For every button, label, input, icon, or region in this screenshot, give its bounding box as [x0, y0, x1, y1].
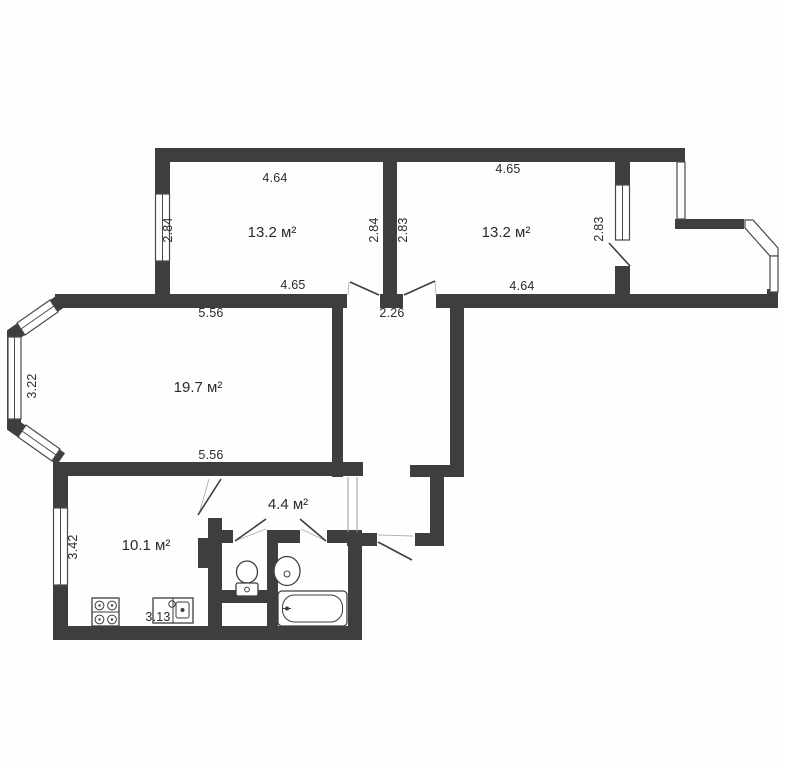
dim-label: 3.42	[66, 534, 80, 559]
wall-top	[155, 148, 685, 162]
dim-label: 2.83	[396, 217, 410, 242]
room-corridor: 2.26	[379, 306, 404, 320]
wall-bathroom-right	[348, 533, 362, 626]
door-kitchen-icon	[198, 479, 221, 515]
ventilation-shaft	[198, 538, 222, 568]
balcony-glazing-top-icon	[677, 162, 685, 219]
wall-kitchen-right	[208, 518, 222, 626]
dim-label: 2.26	[379, 306, 404, 320]
dim-label: 4.64	[262, 171, 287, 185]
wall-room2-right-upper	[615, 158, 630, 185]
dim-label: 3.13	[145, 610, 170, 624]
wall-wet-a	[222, 530, 233, 543]
door-bathroom-icon	[300, 519, 326, 541]
door-balcony-icon	[609, 243, 630, 266]
dim-label: 5.56	[198, 448, 223, 462]
bathtub-icon	[278, 591, 347, 626]
door-bedroom-left-icon	[348, 282, 379, 295]
dim-label: 4.65	[280, 278, 305, 292]
room-hallway: 4.4 м²	[268, 496, 308, 513]
stove-icon	[92, 598, 119, 626]
balcony-glazing-side-icon	[770, 256, 778, 292]
dim-label: 4.65	[495, 162, 520, 176]
wash-basin-icon	[273, 557, 300, 586]
wall-entry-bottom-right	[415, 533, 444, 546]
room-bedroom-right: 4.65 13.2 м² 4.64 2.83 2.83	[396, 162, 606, 293]
wall-bottom	[53, 626, 362, 640]
room-area-label: 13.2 м²	[248, 224, 297, 241]
dim-label: 2.84	[161, 217, 175, 242]
wall-corridor-left	[332, 308, 343, 477]
floor-plan-svg: 4.64 13.2 м² 4.65 2.84 2.84 4.65 13.2 м²…	[0, 0, 785, 768]
room-area-label: 13.2 м²	[482, 224, 531, 241]
door-bedroom-right-icon	[404, 281, 436, 295]
room-area-label: 10.1 м²	[122, 537, 171, 554]
entrance-door-icon	[378, 535, 413, 560]
dim-label: 3.22	[25, 373, 39, 398]
dim-label: 2.83	[592, 216, 606, 241]
floor-plan-page: 4.64 13.2 м² 4.65 2.84 2.84 4.65 13.2 м²…	[0, 0, 785, 768]
wall-room1-left-upper	[155, 158, 170, 196]
opening-hallway-entry	[348, 477, 357, 532]
room-area-label: 19.7 м²	[174, 379, 223, 396]
wall-kitchen-left-upper	[53, 462, 68, 508]
wall-balcony-ledge	[675, 219, 744, 229]
wall-corridor-right	[450, 308, 464, 470]
dim-label: 2.84	[367, 217, 381, 242]
wall-entry-pier	[410, 465, 464, 477]
wall-topband-bottom-right	[436, 294, 778, 308]
door-wc-icon	[235, 519, 266, 541]
wall-between-bedrooms	[383, 158, 397, 308]
dim-label: 4.64	[509, 279, 534, 293]
toilet-icon	[236, 561, 258, 596]
doors	[198, 243, 630, 560]
room-area-label: 4.4 м²	[268, 496, 308, 513]
wall-living-bottom	[53, 462, 363, 476]
room-living: 5.56 19.7 м² 5.56 3.22	[25, 306, 224, 462]
balcony-glazing-chamfer-icon	[745, 220, 778, 256]
room-bedroom-left: 4.64 13.2 м² 4.65 2.84 2.84	[161, 171, 381, 292]
dim-label: 5.56	[198, 306, 223, 320]
